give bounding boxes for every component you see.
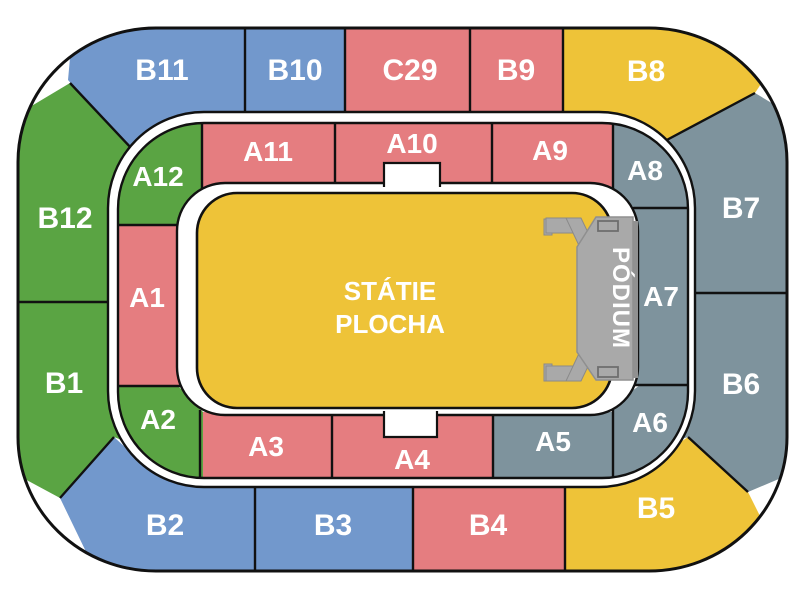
- section-b3-shape: [255, 470, 413, 600]
- section-a9[interactable]: [492, 116, 613, 191]
- section-b4-shape: [413, 470, 565, 600]
- section-a3-shape: [200, 412, 332, 486]
- section-a7[interactable]: [630, 208, 695, 385]
- section-a11-shape: [202, 116, 335, 191]
- section-a1[interactable]: [112, 225, 180, 386]
- section-b4[interactable]: [413, 470, 565, 600]
- section-a9-shape: [492, 116, 613, 191]
- section-a7-shape: [630, 208, 695, 385]
- entrance-notch-top: [384, 163, 440, 187]
- section-a5-shape: [493, 412, 613, 486]
- stage-label: PÓDIUM: [607, 247, 635, 349]
- arena-seating-map: PÓDIUM B11 B10 C29 B9 B8 B7 B6 B5 B4 B3 …: [0, 0, 800, 600]
- entrance-notch-bottom: [384, 411, 437, 437]
- section-a1-shape: [112, 225, 180, 386]
- section-b3[interactable]: [255, 470, 413, 600]
- section-a5[interactable]: [493, 412, 613, 486]
- section-a3[interactable]: [200, 412, 332, 486]
- seating-map-page: PÓDIUM B11 B10 C29 B9 B8 B7 B6 B5 B4 B3 …: [0, 0, 800, 600]
- section-a11[interactable]: [202, 116, 335, 191]
